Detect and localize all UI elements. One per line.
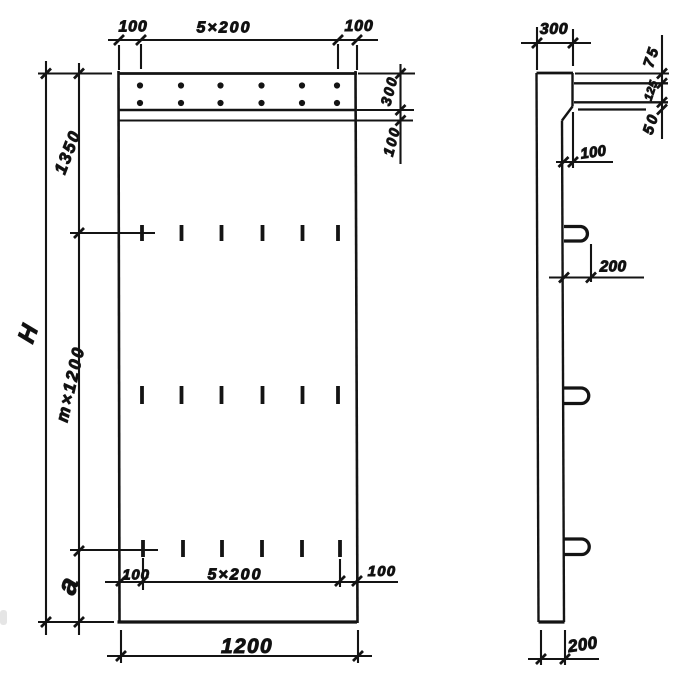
svg-text:75: 75 bbox=[640, 44, 663, 70]
svg-text:100: 100 bbox=[118, 19, 147, 36]
svg-text:H: H bbox=[13, 321, 45, 347]
svg-text:m×1200: m×1200 bbox=[53, 344, 89, 424]
svg-text:300: 300 bbox=[540, 21, 569, 38]
svg-text:5×200: 5×200 bbox=[197, 20, 252, 37]
svg-text:50: 50 bbox=[640, 111, 663, 137]
svg-text:100: 100 bbox=[368, 563, 397, 580]
svg-text:100: 100 bbox=[579, 142, 607, 162]
svg-text:300: 300 bbox=[379, 74, 402, 107]
svg-text:200: 200 bbox=[599, 259, 627, 276]
svg-text:1200: 1200 bbox=[221, 635, 273, 658]
svg-text:100: 100 bbox=[344, 18, 373, 35]
svg-text:200: 200 bbox=[566, 633, 599, 656]
svg-text:5×200: 5×200 bbox=[208, 567, 263, 584]
svg-text:100: 100 bbox=[122, 567, 149, 584]
